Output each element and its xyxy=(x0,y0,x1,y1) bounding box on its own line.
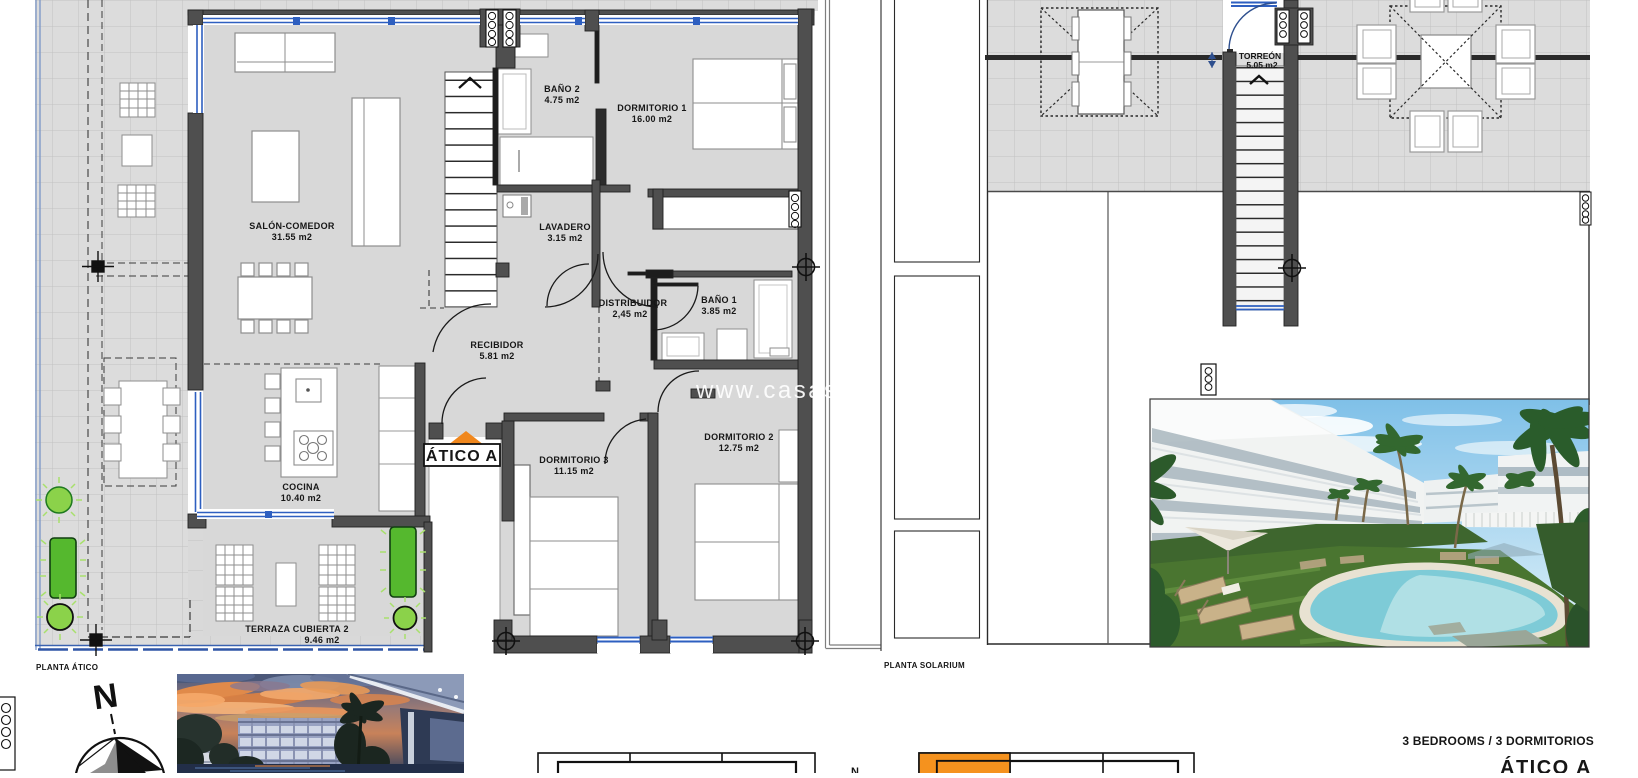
svg-text:SALÓN-COMEDOR: SALÓN-COMEDOR xyxy=(249,220,335,231)
svg-text:DORMITORIO 2: DORMITORIO 2 xyxy=(704,432,773,442)
svg-text:ÁTICO A: ÁTICO A xyxy=(426,446,498,465)
svg-text:5.81 m2: 5.81 m2 xyxy=(479,351,514,361)
svg-text:BAÑO 2: BAÑO 2 xyxy=(544,84,580,94)
svg-text:2,45 m2: 2,45 m2 xyxy=(612,309,647,319)
svg-text:BAÑO 1: BAÑO 1 xyxy=(701,295,737,305)
svg-text:PLANTA ÁTICO: PLANTA ÁTICO xyxy=(36,663,98,672)
svg-text:LAVADERO: LAVADERO xyxy=(539,222,591,232)
svg-text:4.75 m2: 4.75 m2 xyxy=(544,95,579,105)
svg-text:12.75 m2: 12.75 m2 xyxy=(719,443,759,453)
svg-text:TERRAZA CUBIERTA 2: TERRAZA CUBIERTA 2 xyxy=(245,624,349,634)
svg-text:PLANTA SOLARIUM: PLANTA SOLARIUM xyxy=(884,661,965,670)
svg-text:www.casasw: www.casasw xyxy=(695,377,858,404)
svg-text:11.15 m2: 11.15 m2 xyxy=(554,466,594,476)
svg-text:3.85 m2: 3.85 m2 xyxy=(701,306,736,316)
svg-text:9.46 m2: 9.46 m2 xyxy=(304,635,339,645)
svg-text:5.05 m2: 5.05 m2 xyxy=(1246,60,1277,70)
svg-text:3.15 m2: 3.15 m2 xyxy=(547,233,582,243)
svg-text:10.40 m2: 10.40 m2 xyxy=(281,493,321,503)
svg-text:DORMITORIO 3: DORMITORIO 3 xyxy=(539,455,608,465)
svg-text:3 BEDROOMS / 3 DORMITORIOS: 3 BEDROOMS / 3 DORMITORIOS xyxy=(1402,734,1594,748)
svg-text:N: N xyxy=(91,676,121,717)
svg-text:N: N xyxy=(851,766,859,773)
svg-text:COCINA: COCINA xyxy=(282,482,319,492)
svg-text:DORMITORIO 1: DORMITORIO 1 xyxy=(617,103,686,113)
svg-text:16.00 m2: 16.00 m2 xyxy=(632,114,672,124)
svg-text:ÁTICO A: ÁTICO A xyxy=(1500,756,1592,773)
svg-text:DISTRIBUIDOR: DISTRIBUIDOR xyxy=(599,298,668,308)
svg-text:31.55 m2: 31.55 m2 xyxy=(272,232,312,242)
svg-text:RECIBIDOR: RECIBIDOR xyxy=(470,340,523,350)
